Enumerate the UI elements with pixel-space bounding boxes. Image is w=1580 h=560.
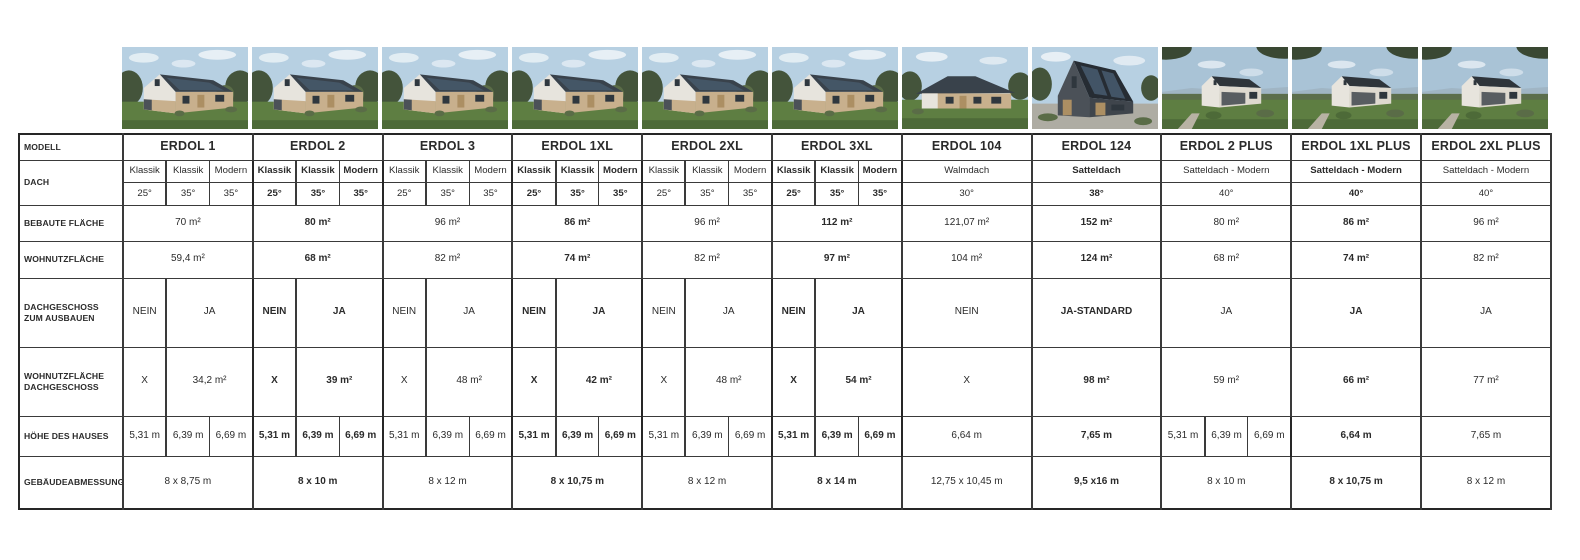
cell-dach_degrees: 25° [642,182,685,205]
cell-wohnutzflaeche_dg: 48 m² [685,347,772,416]
cell-dach_types: Klassik [642,160,685,182]
row-label-wohnutzflaeche: WOHNUTZFLÄCHE [19,241,123,278]
cell-dachgeschoss: JA-STANDARD [1032,278,1162,347]
cell-dachgeschoss: JA [1161,278,1291,347]
cell-dach_types: Klassik [556,160,599,182]
cell-dach_degrees: 35° [685,182,728,205]
cell-hoehe: 6,69 m [599,416,642,456]
model-name: ERDOL 3XL [772,134,902,160]
cell-dach_types: Klassik [512,160,555,182]
cell-dach_degrees: 35° [729,182,772,205]
house-photo-erdol-2-plus [1162,47,1288,129]
cell-wohnutzflaeche: 104 m² [902,241,1032,278]
cell-wohnutzflaeche_dg: 39 m² [296,347,383,416]
cell-dach_types: Walmdach [902,160,1032,182]
cell-dach_types: Satteldach - Modern [1161,160,1291,182]
cell-dach_degrees: 35° [426,182,469,205]
cell-hoehe: 7,65 m [1421,416,1551,456]
cell-wohnutzflaeche_dg: 34,2 m² [166,347,253,416]
cell-dach_types: Klassik [296,160,339,182]
cell-hoehe: 6,39 m [1205,416,1248,456]
cell-hoehe: 6,39 m [556,416,599,456]
row-label-modell: MODELL [19,134,123,160]
cell-wohnutzflaeche_dg: X [383,347,426,416]
cell-abmessung: 8 x 12 m [642,456,772,509]
cell-dachgeschoss: JA [166,278,253,347]
cell-hoehe: 6,69 m [859,416,902,456]
cell-dach_types: Klassik [166,160,209,182]
cell-wohnutzflaeche: 68 m² [1161,241,1291,278]
cell-abmessung: 8 x 10 m [253,456,383,509]
cell-wohnutzflaeche_dg: X [123,347,166,416]
row-label-hoehe: HÖHE DES HAUSES [19,416,123,456]
cell-dachgeschoss: JA [556,278,643,347]
cell-hoehe: 5,31 m [123,416,166,456]
house-photo-erdol-3xl [772,47,898,129]
cell-wohnutzflaeche_dg: X [253,347,296,416]
cell-bebaute_flaeche: 96 m² [642,205,772,241]
cell-dach_types: Klassik [123,160,166,182]
cell-dach_types: Klassik [426,160,469,182]
cell-abmessung: 9,5 x16 m [1032,456,1162,509]
model-name: ERDOL 3 [383,134,513,160]
cell-dach_types: Modern [339,160,382,182]
house-photo-erdol-1xl [512,47,638,129]
model-name: ERDOL 2 [253,134,383,160]
row-dach_degrees: 25°35°35°25°35°35°25°35°35°25°35°35°25°3… [19,182,1551,205]
cell-wohnutzflaeche: 74 m² [1291,241,1421,278]
cell-dachgeschoss: JA [1421,278,1551,347]
cell-dach_degrees: 35° [210,182,253,205]
cell-hoehe: 6,69 m [469,416,512,456]
house-photo-erdol-104 [902,47,1028,129]
cell-hoehe: 5,31 m [383,416,426,456]
row-label-bebaute_flaeche: BEBAUTE FLÄCHE [19,205,123,241]
cell-dach_degrees: 35° [469,182,512,205]
cell-hoehe: 5,31 m [642,416,685,456]
cell-wohnutzflaeche: 82 m² [1421,241,1551,278]
cell-wohnutzflaeche: 82 m² [642,241,772,278]
house-photo-erdol-2xl-plus [1422,47,1548,129]
cell-dach_degrees: 38° [1032,182,1162,205]
row-wohnutzflaeche_dg: WOHNUTZFLÄCHE DACHGESCHOSSX34,2 m²X39 m²… [19,347,1551,416]
cell-bebaute_flaeche: 96 m² [383,205,513,241]
cell-dach_degrees: 35° [296,182,339,205]
cell-hoehe: 6,69 m [339,416,382,456]
cell-abmessung: 8 x 10 m [1161,456,1291,509]
cell-dachgeschoss: JA [296,278,383,347]
house-photos-row [122,47,1552,129]
row-bebaute_flaeche: BEBAUTE FLÄCHE70 m²80 m²96 m²86 m²96 m²1… [19,205,1551,241]
row-label-abmessung: GEBÄUDEABMESSUNG [19,456,123,509]
house-photo-erdol-1 [122,47,248,129]
cell-hoehe: 6,69 m [1248,416,1291,456]
cell-bebaute_flaeche: 80 m² [1161,205,1291,241]
model-name: ERDOL 1XL PLUS [1291,134,1421,160]
cell-hoehe: 6,39 m [685,416,728,456]
cell-dach_degrees: 25° [253,182,296,205]
cell-dach_types: Satteldach [1032,160,1162,182]
cell-dach_degrees: 35° [339,182,382,205]
cell-wohnutzflaeche_dg: X [512,347,555,416]
cell-dach_types: Klassik [685,160,728,182]
model-name: ERDOL 124 [1032,134,1162,160]
model-name: ERDOL 2XL [642,134,772,160]
cell-abmessung: 12,75 x 10,45 m [902,456,1032,509]
cell-abmessung: 8 x 12 m [383,456,513,509]
cell-wohnutzflaeche: 124 m² [1032,241,1162,278]
cell-wohnutzflaeche_dg: 48 m² [426,347,513,416]
cell-dach_types: Klassik [253,160,296,182]
cell-bebaute_flaeche: 96 m² [1421,205,1551,241]
cell-bebaute_flaeche: 121,07 m² [902,205,1032,241]
cell-dach_degrees: 35° [815,182,858,205]
cell-wohnutzflaeche_dg: X [772,347,815,416]
cell-dachgeschoss: JA [685,278,772,347]
cell-hoehe: 6,69 m [729,416,772,456]
row-label-dach: DACH [19,160,123,205]
cell-hoehe: 6,39 m [815,416,858,456]
cell-dachgeschoss: JA [815,278,902,347]
cell-dach_types: Modern [859,160,902,182]
cell-wohnutzflaeche_dg: 66 m² [1291,347,1421,416]
cell-abmessung: 8 x 10,75 m [512,456,642,509]
row-hoehe: HÖHE DES HAUSES5,31 m6,39 m6,69 m5,31 m6… [19,416,1551,456]
cell-dachgeschoss: NEIN [512,278,555,347]
cell-dach_types: Satteldach - Modern [1291,160,1421,182]
house-photo-erdol-2xl [642,47,768,129]
cell-wohnutzflaeche: 68 m² [253,241,383,278]
house-photo-erdol-1xl-plus [1292,47,1418,129]
cell-abmessung: 8 x 10,75 m [1291,456,1421,509]
model-name: ERDOL 1XL [512,134,642,160]
cell-wohnutzflaeche: 82 m² [383,241,513,278]
cell-dachgeschoss: NEIN [383,278,426,347]
cell-dach_types: Modern [469,160,512,182]
cell-hoehe: 5,31 m [512,416,555,456]
cell-dach_types: Klassik [383,160,426,182]
cell-bebaute_flaeche: 86 m² [512,205,642,241]
cell-dach_degrees: 35° [556,182,599,205]
cell-dach_degrees: 35° [166,182,209,205]
cell-dach_types: Modern [210,160,253,182]
cell-hoehe: 6,64 m [902,416,1032,456]
cell-dach_types: Klassik [772,160,815,182]
cell-dachgeschoss: NEIN [902,278,1032,347]
cell-dachgeschoss: NEIN [123,278,166,347]
house-photo-erdol-2 [252,47,378,129]
cell-bebaute_flaeche: 80 m² [253,205,383,241]
cell-bebaute_flaeche: 112 m² [772,205,902,241]
cell-abmessung: 8 x 12 m [1421,456,1551,509]
row-label-dachgeschoss: DACHGESCHOSS ZUM AUSBAUEN [19,278,123,347]
cell-dach_degrees: 25° [772,182,815,205]
cell-dach_types: Klassik [815,160,858,182]
model-name: ERDOL 2 PLUS [1161,134,1291,160]
cell-hoehe: 5,31 m [772,416,815,456]
cell-dach_degrees: 35° [599,182,642,205]
cell-wohnutzflaeche_dg: 42 m² [556,347,643,416]
cell-abmessung: 8 x 14 m [772,456,902,509]
row-dach_types: DACHKlassikKlassikModernKlassikKlassikMo… [19,160,1551,182]
model-name: ERDOL 2XL PLUS [1421,134,1551,160]
cell-dach_types: Modern [599,160,642,182]
cell-wohnutzflaeche: 74 m² [512,241,642,278]
row-label-wohnutzflaeche_dg: WOHNUTZFLÄCHE DACHGESCHOSS [19,347,123,416]
cell-wohnutzflaeche_dg: X [902,347,1032,416]
cell-hoehe: 7,65 m [1032,416,1162,456]
cell-wohnutzflaeche_dg: 77 m² [1421,347,1551,416]
row-abmessung: GEBÄUDEABMESSUNG8 x 8,75 m8 x 10 m8 x 12… [19,456,1551,509]
cell-wohnutzflaeche_dg: 98 m² [1032,347,1162,416]
house-photo-erdol-3 [382,47,508,129]
cell-wohnutzflaeche_dg: 54 m² [815,347,902,416]
cell-wohnutzflaeche_dg: 59 m² [1161,347,1291,416]
cell-wohnutzflaeche_dg: X [642,347,685,416]
model-name: ERDOL 1 [123,134,253,160]
cell-hoehe: 6,69 m [210,416,253,456]
cell-dach_degrees: 25° [383,182,426,205]
cell-dach_degrees: 25° [123,182,166,205]
cell-dach_degrees: 35° [859,182,902,205]
house-photo-erdol-124 [1032,47,1158,129]
cell-dach_types: Modern [729,160,772,182]
cell-hoehe: 6,39 m [296,416,339,456]
cell-dachgeschoss: JA [426,278,513,347]
cell-dach_degrees: 40° [1161,182,1291,205]
cell-hoehe: 5,31 m [253,416,296,456]
comparison-table: MODELLERDOL 1ERDOL 2ERDOL 3ERDOL 1XLERDO… [18,133,1552,510]
cell-bebaute_flaeche: 86 m² [1291,205,1421,241]
cell-dach_degrees: 40° [1421,182,1551,205]
model-name: ERDOL 104 [902,134,1032,160]
cell-hoehe: 5,31 m [1161,416,1204,456]
page: MODELLERDOL 1ERDOL 2ERDOL 3ERDOL 1XLERDO… [0,0,1580,560]
cell-dachgeschoss: NEIN [772,278,815,347]
cell-wohnutzflaeche: 97 m² [772,241,902,278]
row-wohnutzflaeche: WOHNUTZFLÄCHE59,4 m²68 m²82 m²74 m²82 m²… [19,241,1551,278]
row-name: MODELLERDOL 1ERDOL 2ERDOL 3ERDOL 1XLERDO… [19,134,1551,160]
row-dachgeschoss: DACHGESCHOSS ZUM AUSBAUENNEINJANEINJANEI… [19,278,1551,347]
cell-dach_degrees: 40° [1291,182,1421,205]
model-comparison-section: MODELLERDOL 1ERDOL 2ERDOL 3ERDOL 1XLERDO… [18,47,1552,510]
cell-hoehe: 6,64 m [1291,416,1421,456]
cell-dachgeschoss: NEIN [253,278,296,347]
cell-hoehe: 6,39 m [166,416,209,456]
cell-bebaute_flaeche: 70 m² [123,205,253,241]
cell-dach_types: Satteldach - Modern [1421,160,1551,182]
cell-dachgeschoss: NEIN [642,278,685,347]
cell-dach_degrees: 25° [512,182,555,205]
cell-dach_degrees: 30° [902,182,1032,205]
cell-hoehe: 6,39 m [426,416,469,456]
cell-wohnutzflaeche: 59,4 m² [123,241,253,278]
cell-bebaute_flaeche: 152 m² [1032,205,1162,241]
cell-dachgeschoss: JA [1291,278,1421,347]
cell-abmessung: 8 x 8,75 m [123,456,253,509]
